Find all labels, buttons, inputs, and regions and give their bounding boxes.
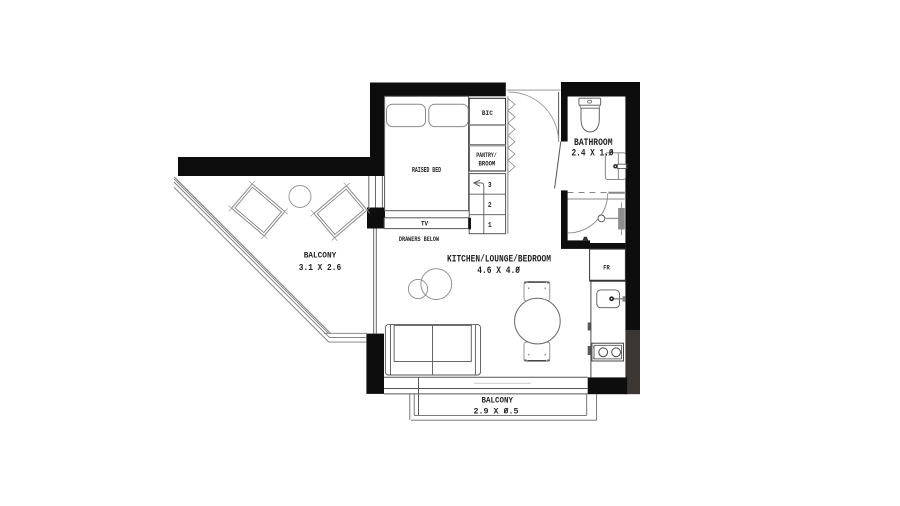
svg-text:TV: TV <box>421 221 428 228</box>
svg-text:1: 1 <box>488 222 492 230</box>
svg-text:2.4 X 1.0: 2.4 X 1.0 <box>572 149 614 160</box>
svg-text:BATHROOM: BATHROOM <box>574 137 613 149</box>
svg-text:2: 2 <box>488 202 492 210</box>
svg-text:DRAWERS BELOW: DRAWERS BELOW <box>399 236 440 243</box>
svg-text:PANTRY/: PANTRY/ <box>476 152 497 159</box>
svg-text:RAISED BED: RAISED BED <box>412 167 441 175</box>
svg-text:2.9 X 0.5: 2.9 X 0.5 <box>474 407 519 417</box>
svg-text:3.1 X 2.6: 3.1 X 2.6 <box>299 262 342 273</box>
svg-text:3: 3 <box>488 182 492 190</box>
svg-text:BIC: BIC <box>482 110 493 117</box>
svg-text:BROOM: BROOM <box>479 161 496 168</box>
svg-text:BALCONY: BALCONY <box>304 251 337 261</box>
svg-text:BALCONY: BALCONY <box>482 396 514 405</box>
svg-text:KITCHEN/LOUNGE/BEDROOM: KITCHEN/LOUNGE/BEDROOM <box>447 254 551 266</box>
svg-text:FR: FR <box>603 264 610 271</box>
svg-text:4.6 X 4.0: 4.6 X 4.0 <box>477 266 520 277</box>
